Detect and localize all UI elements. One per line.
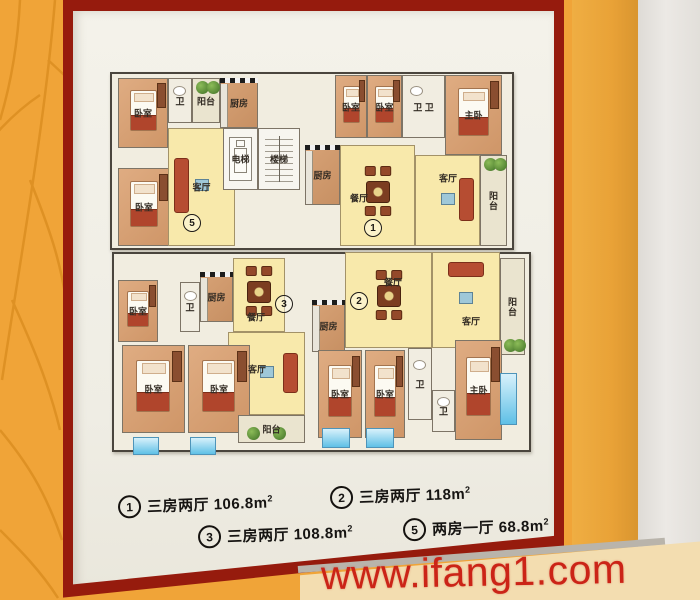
legend-number: 1	[118, 495, 142, 519]
watermark-url: www.ifang1.com	[321, 546, 627, 599]
photo-of-floorplan-poster: 卧室卫阳台厨房卧室客厅电梯楼梯卧室卧室卫 卫主卧厨房餐厅客厅阳台卧室卫厨房餐厅客…	[0, 0, 700, 600]
legend-item: 3三房两厅 108.8m2	[198, 520, 354, 548]
legend-label: 三房两厅 108.8m2	[227, 521, 354, 546]
legend-number: 3	[198, 525, 222, 549]
legend-label: 三房两厅 106.8m2	[147, 491, 274, 516]
legend-label: 三房两厅 118m2	[359, 483, 471, 508]
legend-label: 两房一厅 68.8m2	[432, 514, 550, 539]
legend-item: 1三房两厅 106.8m2	[118, 490, 274, 518]
legend-number: 5	[403, 518, 427, 542]
legend-item: 2三房两厅 118m2	[330, 482, 471, 510]
legend: 1三房两厅 106.8m22三房两厅 118m23三房两厅 108.8m25两房…	[0, 0, 700, 600]
legend-number: 2	[330, 486, 354, 510]
legend-item: 5两房一厅 68.8m2	[403, 513, 550, 541]
